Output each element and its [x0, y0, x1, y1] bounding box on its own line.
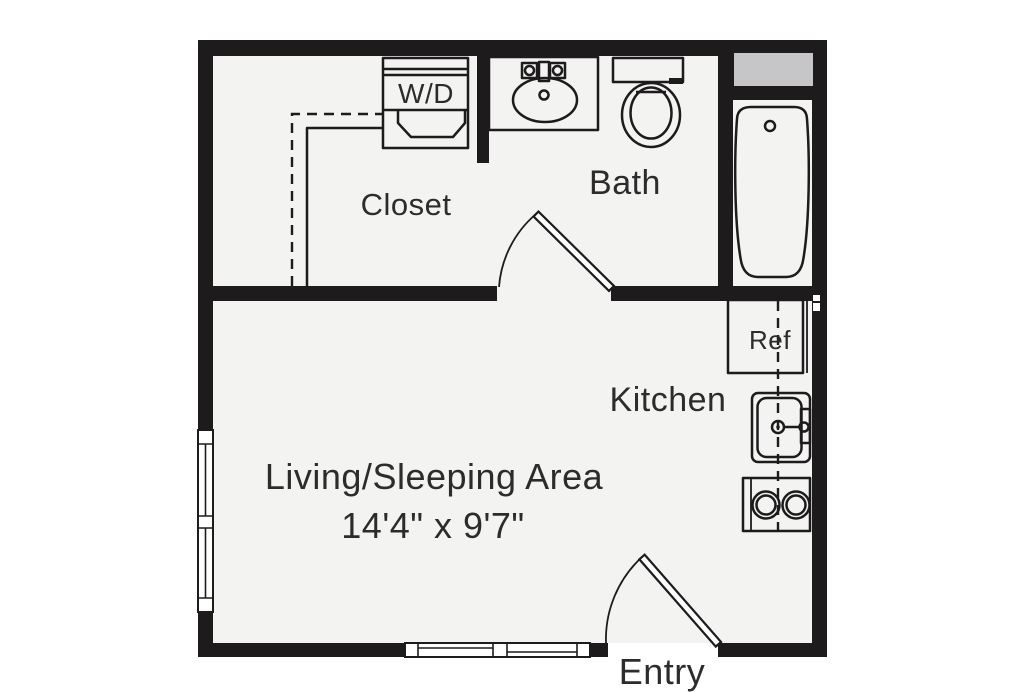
living-area-label: Living/Sleeping Area	[265, 456, 604, 497]
wall-right	[812, 40, 827, 657]
wall-bath-tub	[718, 56, 733, 301]
floor-plan: Closet Bath Kitchen Living/Sleeping Area…	[0, 0, 1024, 692]
window-left	[198, 430, 213, 612]
closet-label: Closet	[361, 187, 452, 222]
wall-bottom-left	[213, 643, 405, 657]
kitchen-label: Kitchen	[610, 381, 727, 419]
entry-label: Entry	[619, 651, 706, 692]
washer-dryer-label: W/D	[398, 78, 454, 109]
wall-bottom-right	[718, 643, 827, 657]
living-area-dimensions: 14'4" x 9'7"	[341, 505, 524, 546]
utility-chase	[734, 53, 813, 86]
refrigerator-label: Ref	[749, 325, 791, 355]
floor-plan-canvas: Closet Bath Kitchen Living/Sleeping Area…	[0, 0, 1024, 692]
bath-label: Bath	[589, 164, 661, 202]
wall-interior-left	[213, 286, 497, 301]
wall-closet-bath	[477, 56, 489, 163]
window-bottom	[405, 643, 590, 657]
wall-bottom-mid	[590, 643, 608, 657]
